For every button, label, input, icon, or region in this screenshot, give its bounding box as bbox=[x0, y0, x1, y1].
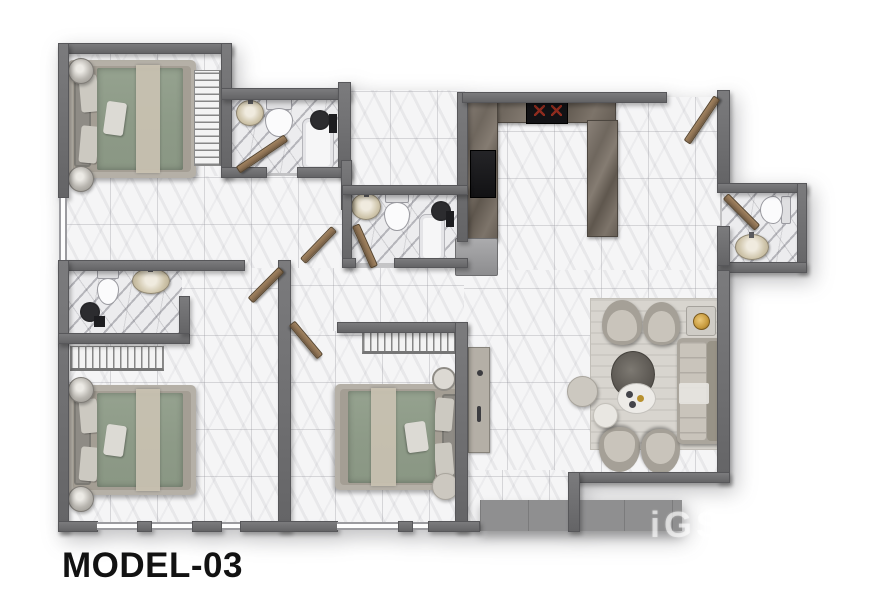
wall bbox=[221, 43, 232, 178]
wall bbox=[278, 260, 291, 532]
sofa-part bbox=[679, 383, 710, 404]
shower-mixer-1 bbox=[329, 114, 337, 133]
nightstand-lamp bbox=[68, 58, 94, 84]
console-desk bbox=[468, 347, 490, 453]
wall bbox=[179, 296, 190, 334]
tray-table-part bbox=[629, 401, 636, 408]
sink-bath-3 bbox=[132, 268, 170, 294]
plan-title: MODEL-03 bbox=[62, 546, 243, 586]
bed-3-part bbox=[434, 397, 455, 431]
nightstand-lamp bbox=[68, 486, 94, 512]
wall bbox=[221, 88, 351, 100]
wall bbox=[394, 258, 468, 268]
window bbox=[222, 522, 240, 530]
wall bbox=[58, 260, 69, 532]
toilet-wc bbox=[759, 192, 791, 228]
table-lamp-gold bbox=[693, 313, 710, 330]
wall-decor-round bbox=[432, 367, 456, 391]
toilet-bath-1-part bbox=[265, 108, 292, 137]
bed-2-part bbox=[136, 389, 160, 490]
shower-mixer-2 bbox=[446, 211, 454, 227]
wall bbox=[717, 90, 730, 185]
wall bbox=[342, 185, 352, 268]
bed-3-part bbox=[434, 443, 455, 477]
console-desk-part bbox=[477, 370, 483, 376]
bed-3-part bbox=[405, 421, 430, 453]
wall bbox=[58, 43, 69, 198]
wall bbox=[568, 472, 730, 483]
nightstand-lamp bbox=[68, 377, 94, 403]
wardrobe-2 bbox=[70, 346, 164, 371]
bed-2 bbox=[68, 385, 196, 495]
wall bbox=[342, 258, 356, 268]
toilet-bath-2 bbox=[381, 191, 413, 232]
wall bbox=[568, 472, 580, 532]
sink-bath-1 bbox=[236, 100, 264, 126]
bed-1-part bbox=[78, 125, 99, 163]
wall bbox=[240, 521, 338, 532]
floor-plan-page: iGS MODEL-03 bbox=[0, 0, 890, 594]
sofa bbox=[677, 338, 722, 444]
armchair bbox=[602, 300, 642, 345]
toilet-bath-3-part bbox=[97, 278, 119, 305]
armchair bbox=[643, 302, 680, 345]
sink-wc bbox=[735, 234, 769, 260]
toilet-bath-3 bbox=[94, 268, 122, 306]
wall bbox=[337, 322, 468, 333]
bed-3-part bbox=[371, 388, 396, 486]
pouf bbox=[567, 376, 598, 407]
wall bbox=[58, 43, 232, 54]
wall bbox=[462, 92, 667, 103]
tray-table bbox=[617, 383, 656, 414]
toilet-bath-2-part bbox=[384, 202, 410, 232]
armchair-part bbox=[648, 311, 675, 341]
window bbox=[59, 198, 67, 260]
window bbox=[152, 522, 192, 530]
toilet-wc-part bbox=[760, 196, 783, 225]
bed-2-part bbox=[78, 446, 99, 482]
wall bbox=[342, 185, 468, 195]
tray-table-part bbox=[626, 391, 633, 398]
wall bbox=[137, 521, 152, 532]
kitchen-island bbox=[587, 120, 618, 237]
nightstand-lamp bbox=[68, 166, 94, 192]
window bbox=[337, 522, 398, 530]
wall bbox=[58, 333, 190, 344]
wall bbox=[58, 521, 98, 532]
bed-2-part bbox=[78, 399, 99, 435]
floor-entry-hall bbox=[343, 90, 465, 186]
cooktop-part bbox=[551, 105, 562, 116]
watermark: iGS bbox=[650, 504, 724, 546]
wardrobe-1 bbox=[194, 70, 222, 166]
armchair-part bbox=[607, 310, 637, 342]
toilet-bath-1 bbox=[262, 98, 296, 138]
shower-mixer-3 bbox=[94, 316, 105, 327]
toilet-wc-part bbox=[781, 196, 791, 223]
armchair-part bbox=[646, 433, 675, 465]
pouf-white bbox=[593, 403, 618, 428]
bed-1-part bbox=[136, 65, 160, 174]
wall bbox=[455, 322, 468, 532]
wall bbox=[428, 521, 480, 532]
sink-bath-2 bbox=[351, 193, 381, 220]
wall bbox=[717, 270, 730, 483]
wall bbox=[717, 226, 730, 266]
wall bbox=[717, 183, 807, 193]
wall bbox=[58, 260, 245, 271]
wall bbox=[192, 521, 222, 532]
fridge bbox=[455, 238, 498, 276]
window bbox=[413, 522, 428, 530]
shower-head-1 bbox=[310, 110, 330, 130]
oven bbox=[470, 150, 496, 198]
shower-tray-2 bbox=[419, 214, 445, 262]
cooktop-part bbox=[534, 105, 545, 116]
wall bbox=[717, 262, 807, 273]
floor-plan-canvas bbox=[0, 0, 890, 594]
window bbox=[97, 522, 137, 530]
armchair-part bbox=[604, 431, 634, 463]
tray-table-part bbox=[637, 395, 644, 402]
console-desk-part bbox=[477, 406, 481, 422]
wall bbox=[398, 521, 413, 532]
wall bbox=[457, 92, 468, 242]
wall bbox=[797, 183, 807, 272]
